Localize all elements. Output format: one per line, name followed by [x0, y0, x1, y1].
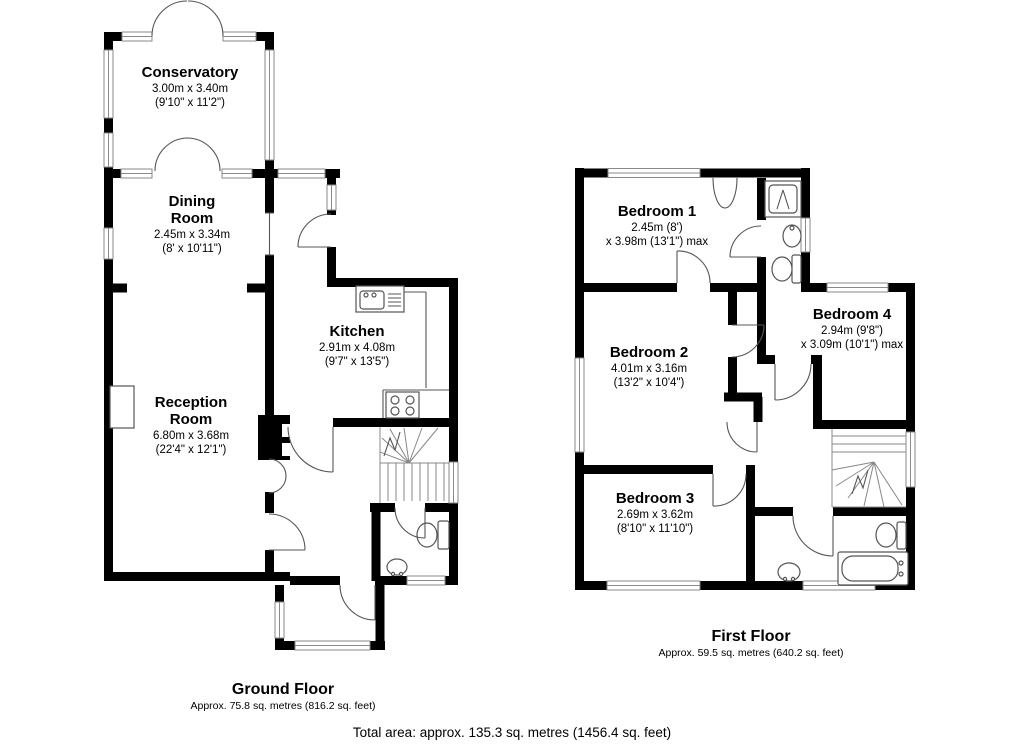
bathroom-bath [838, 552, 908, 585]
ground-stairs [380, 427, 449, 503]
room-dim-imperial: x 3.09m (10'1") max [801, 339, 903, 351]
room-dim-imperial: (9'10" x 11'2") [155, 97, 225, 109]
floorplan-page: Conservatory 3.00m x 3.40m (9'10" x 11'2… [0, 0, 1024, 744]
room-dim-imperial: x 3.98m (13'1") max [606, 236, 708, 248]
room-name: Bedroom 4 [813, 306, 892, 323]
room-dim-imperial: (8' x 10'11") [162, 243, 222, 255]
conservatory-label: Conservatory 3.00m x 3.40m (9'10" x 11'2… [142, 64, 239, 109]
conservatory-french-doors [152, 1, 223, 36]
stairs-window-right [449, 462, 458, 503]
bedroom2-label: Bedroom 2 4.01m x 3.16m (13'2" x 10'4") [610, 344, 688, 389]
room-name: Reception [155, 394, 228, 411]
ground-floor-area: Approx. 75.8 sq. metres (816.2 sq. feet) [190, 700, 375, 712]
lobby-side-door [298, 214, 331, 247]
bedroom4-door [775, 364, 811, 400]
bedroom3-door [713, 474, 746, 506]
conservatory-window-bottom-left [121, 169, 152, 178]
bedroom2-window-left [575, 358, 584, 452]
total-area-label: Total area: approx. 135.3 sq. metres (14… [353, 725, 671, 740]
porch-window-left [275, 602, 284, 638]
room-name: Conservatory [142, 64, 239, 81]
room-dim-imperial: (9'7" x 13'5") [325, 356, 390, 368]
room-name: Bedroom 1 [618, 203, 696, 220]
ground-walls [104, 32, 458, 650]
kitchen-sink-unit [356, 286, 404, 312]
porch-window-bottom [295, 641, 370, 650]
wc-basin [387, 559, 407, 576]
room-dim-metric: 2.69m x 3.62m [617, 509, 693, 521]
wc-toilet [417, 521, 449, 549]
ensuite-window-right [801, 218, 810, 252]
bathroom-basin [778, 563, 800, 581]
cased-opening [265, 213, 274, 255]
room-dim-metric: 2.94m (9'8") [821, 325, 883, 337]
room-dim-imperial: (13'2" x 10'4") [614, 377, 685, 389]
bathroom-door [793, 516, 833, 556]
conservatory-window-top-right [223, 32, 256, 41]
dining-room-label: Dining Room 2.45m x 3.34m (8' x 10'11") [154, 193, 230, 255]
reception-room-label: Reception Room 6.80m x 3.68m (22'4" x 12… [153, 394, 229, 456]
kitchen-stove [386, 392, 419, 418]
room-name: Bedroom 2 [610, 344, 688, 361]
room-dim-metric: 4.01m x 3.16m [611, 363, 687, 375]
room-name: Bedroom 3 [616, 490, 694, 507]
wc-window-bottom [407, 576, 445, 585]
room-name: Kitchen [329, 323, 384, 340]
bedroom1-window-top [608, 169, 700, 178]
bedroom1-wardrobe-doors [713, 178, 737, 208]
ground-floor-title: Ground Floor [232, 681, 334, 698]
room-name-line2: Room [170, 411, 213, 428]
bedroom3-window-bottom [607, 581, 700, 590]
bedroom1-label: Bedroom 1 2.45m (8') x 3.98m (13'1") max [606, 203, 708, 248]
dining-window-left [104, 228, 113, 259]
conservatory-window-right [265, 50, 274, 160]
bedroom4-label: Bedroom 4 2.94m (9'8") x 3.09m (10'1") m… [801, 306, 903, 351]
room-dim-metric: 6.80m x 3.68m [153, 430, 229, 442]
ensuite-door [730, 226, 761, 257]
room-dim-metric: 3.00m x 3.40m [152, 83, 228, 95]
ensuite-basin [783, 225, 801, 247]
ground-floor-plan: Conservatory 3.00m x 3.40m (9'10" x 11'2… [104, 1, 458, 712]
room-dim-metric: 2.45m x 3.34m [154, 229, 230, 241]
reception-hall-door [269, 514, 305, 550]
first-stairs [832, 429, 906, 507]
conservatory-window-left-lower [104, 133, 113, 167]
airing-cupboard-door [727, 422, 757, 452]
first-floor-area: Approx. 59.5 sq. metres (640.2 sq. feet) [658, 647, 843, 659]
lobby-window-right [327, 185, 336, 210]
kitchen-hall-door [288, 427, 333, 472]
ensuite-shower [765, 181, 801, 217]
bathroom-toilet [876, 522, 906, 549]
conservatory-window-left-upper [104, 50, 113, 118]
bedroom1-door [677, 251, 710, 283]
dining-conservatory-doors [155, 138, 220, 171]
reception-double-doors [269, 459, 286, 493]
first-floor-plan: Bedroom 1 2.45m (8') x 3.98m (13'1") max… [575, 168, 915, 659]
room-dim-imperial: (8'10" x 11'10") [617, 523, 693, 535]
first-floor-title: First Floor [711, 628, 790, 645]
reception-radiator [110, 386, 134, 428]
chimney-breast [258, 415, 290, 460]
ensuite-toilet [772, 255, 801, 283]
room-name: Dining [169, 193, 216, 210]
kitchen-label: Kitchen 2.91m x 4.08m (9'7" x 13'5") [319, 323, 395, 368]
room-dim-metric: 2.45m (8') [631, 222, 683, 234]
bedroom3-label: Bedroom 3 2.69m x 3.62m (8'10" x 11'10") [616, 490, 694, 535]
room-dim-metric: 2.91m x 4.08m [319, 342, 395, 354]
landing-window-right [906, 432, 915, 487]
room-dim-imperial: (22'4" x 12'1") [156, 444, 227, 456]
conservatory-window-bottom-right [222, 169, 252, 178]
lobby-window-top [278, 169, 325, 178]
conservatory-window-top-left [122, 32, 152, 41]
room-name-line2: Room [171, 210, 214, 227]
bedroom4-window-top [827, 283, 888, 292]
front-door [340, 585, 375, 620]
floorplan-drawing: Conservatory 3.00m x 3.40m (9'10" x 11'2… [0, 0, 1024, 744]
